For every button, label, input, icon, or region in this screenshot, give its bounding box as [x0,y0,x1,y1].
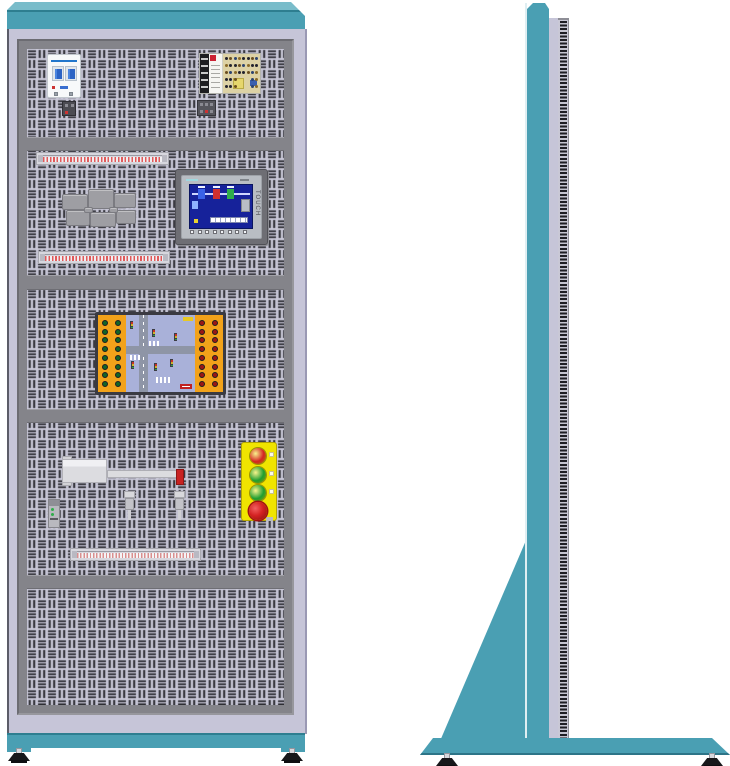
panel-connector [62,101,76,116]
terminal-strip [36,152,169,165]
emergency-stop-button[interactable] [249,502,267,520]
cylinder-rod [107,470,178,478]
breaker-toggle-right[interactable] [65,66,77,81]
cabinet-side-view [410,0,730,766]
panel-divider [27,275,284,290]
road-horizontal [126,346,195,354]
hmi-touch-panel: TOUCH [175,169,268,245]
hmi-function-keys[interactable] [190,229,247,235]
hmi-touch-label: TOUCH [254,190,260,216]
screen-tank-red [213,189,220,199]
sensor-module [48,499,60,528]
base-plate [420,738,730,755]
panel-divider [27,575,284,589]
hmi-screen[interactable] [189,184,253,229]
banana-jack-column-right[interactable] [195,315,223,392]
power-supply-unit [199,53,261,94]
screen-tank-green [227,189,234,199]
breaker-toggle-left[interactable] [52,66,64,81]
screen-tank-blue [198,189,205,199]
leveling-foot [436,753,458,766]
push-button-station [241,442,277,521]
leveling-foot [281,748,303,764]
panel-divider [27,137,284,151]
circuit-breaker [47,54,81,98]
banana-jack-column-left[interactable] [98,315,126,392]
hmi-bezel: TOUCH [181,175,262,239]
button-tag [269,471,274,476]
breaker-marking [51,60,77,62]
side-vent-slots [558,18,569,741]
terminal-strip [38,251,170,264]
hmi-brand-logo [186,179,198,181]
terminal-strip [70,548,201,561]
psu-label [209,54,223,93]
button-tag [269,489,274,494]
relay-module-group [62,189,140,229]
solenoid-valve [174,491,185,520]
cylinder-rod-tip [176,469,184,485]
side-frame-strip [549,18,558,741]
push-button-green-1[interactable] [250,467,266,483]
cabinet-top-cap [7,2,305,29]
leveling-foot [8,748,30,764]
equipment-cabinet-drawing: TOUCH [0,0,730,766]
pneumatic-cylinder [62,459,107,483]
solenoid-valve [124,491,135,520]
psu-circuit-board [223,54,260,93]
button-tag [269,452,274,457]
support-gusset [440,538,527,741]
leveling-foot [701,753,723,766]
psu-brand-logo [210,55,216,61]
push-button-green-2[interactable] [250,485,266,501]
column-edge-highlight [525,3,527,741]
screen-tank-gray [241,199,250,212]
traffic-light-training-module [95,312,226,395]
screen-conveyor [210,217,248,223]
cabinet-front-view: TOUCH [7,0,305,766]
push-button-red[interactable] [250,448,266,464]
module-label [180,384,192,389]
psu-terminal-block [200,54,209,93]
intersection-mimic-board [126,315,195,392]
panel-divider [27,409,284,423]
panel-connector [197,100,216,116]
side-column [527,3,549,741]
front-plinth [7,733,305,748]
